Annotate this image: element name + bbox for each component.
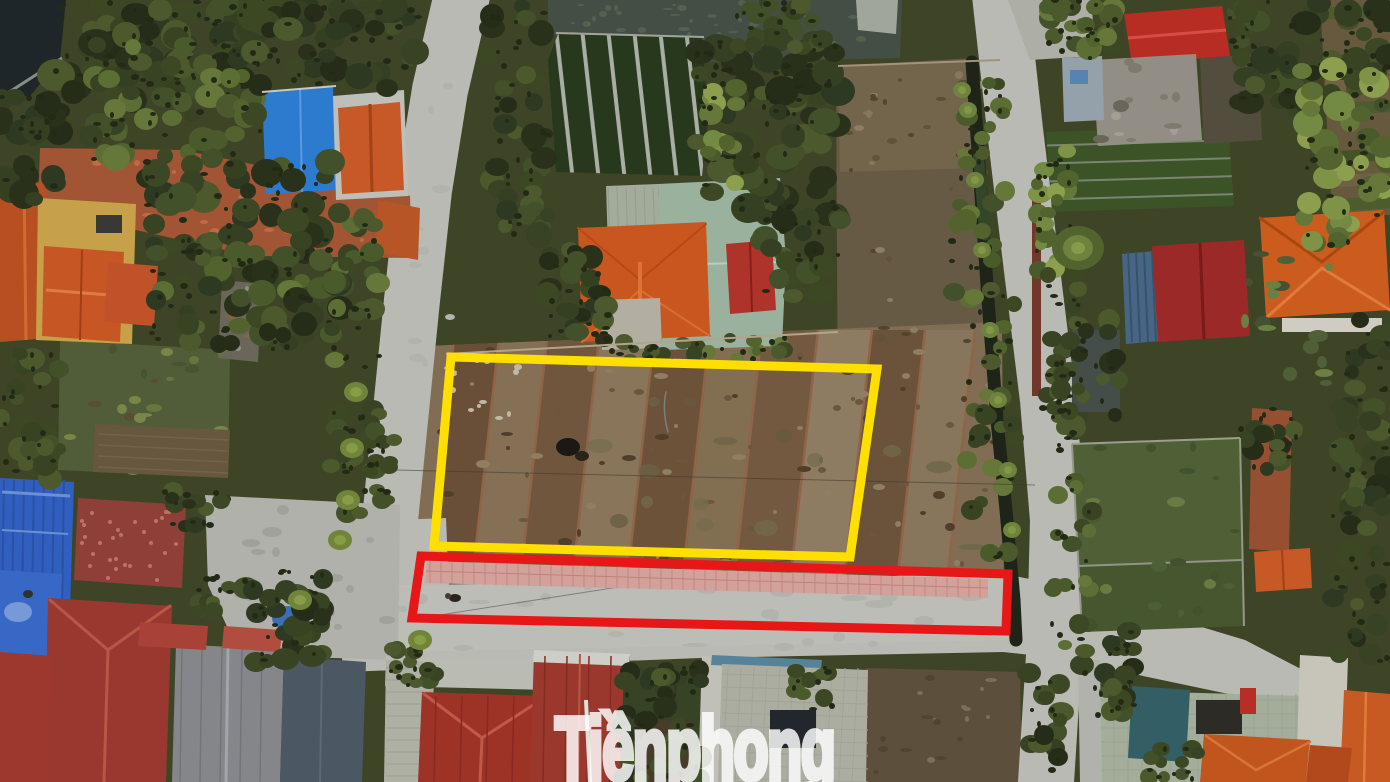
svg-text:Tiềnphong: Tiềnphong xyxy=(555,700,835,782)
